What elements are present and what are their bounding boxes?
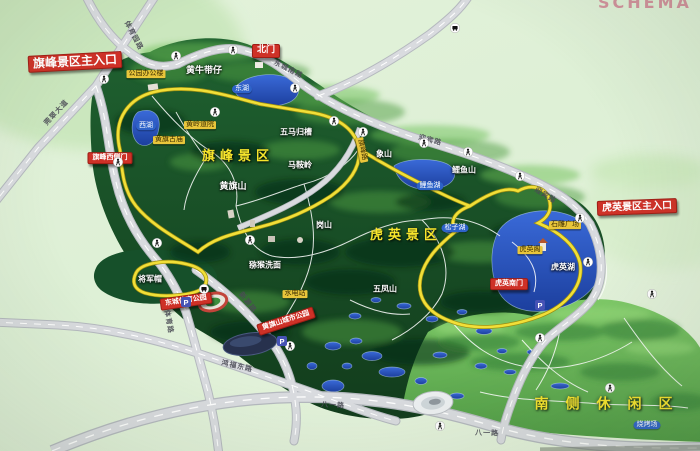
walker-icon	[535, 333, 545, 343]
tag-huying-pavilion: 虎英阁	[518, 246, 543, 254]
map-labels-layer: 旗峰景区主入口北门虎英景区主入口旗峰西侧门虎英南门东城体育公园黄旗山城市公园黄牛…	[0, 0, 700, 451]
place-jiangjunmao: 将军帽	[138, 276, 162, 285]
svg-text:P: P	[279, 337, 284, 346]
parking-icon: P	[277, 336, 287, 346]
area-title-qifeng: 旗峰景区	[202, 150, 274, 164]
place-liyushan: 鲤鱼山	[452, 167, 476, 176]
qifeng-main-entrance-label: 旗峰景区主入口	[28, 51, 123, 73]
lake-tag-east-lake: 东湖	[232, 85, 252, 93]
place-wumaguicao: 五马归槽	[280, 129, 312, 138]
road-bayi-2: 八一路	[475, 430, 499, 439]
lake-tag-west-lake: 西湖	[136, 122, 156, 130]
tag-huangqi-temple: 黄旗古庙	[153, 136, 185, 144]
area-title-south-leisure: 南侧休闲区	[535, 397, 690, 412]
road-tiyu: 体育路	[162, 310, 174, 335]
place-wufengshan: 五凤山	[373, 286, 397, 295]
walker-icon	[575, 213, 585, 223]
bus-icon	[450, 23, 460, 33]
walker-icon	[515, 171, 525, 181]
place-xiangshan: 象山	[376, 151, 392, 160]
huying-lake-name: 虎英湖	[551, 264, 575, 273]
walker-icon	[419, 138, 429, 148]
huying-south-gate-label: 虎英南门	[490, 278, 528, 290]
walker-icon	[605, 383, 615, 393]
tag-park-office: 公园办公楼	[127, 70, 166, 78]
walker-icon	[435, 421, 445, 431]
place-huangniudaizai: 黄牛带仔	[186, 67, 222, 77]
tag-hydro-station: 水电站	[283, 290, 308, 298]
english-title-partial: SCHEMA	[598, 0, 692, 12]
park-map-photo: 旗峰景区主入口北门虎英景区主入口旗峰西侧门虎英南门东城体育公园黄旗山城市公园黄牛…	[0, 0, 700, 451]
walker-icon	[113, 157, 123, 167]
bus-icon	[199, 284, 209, 294]
tag-huangling-temple: 黄岭道院	[184, 121, 216, 129]
huying-main-entrance-label: 虎英景区主入口	[597, 198, 677, 216]
place-gangshan: 岗山	[316, 222, 332, 231]
walker-icon	[228, 45, 238, 55]
road-guancui-avenue: 莞翠大道	[43, 99, 70, 128]
road-hongfudong: 鸿福东路	[221, 360, 254, 375]
lake-tag-liyu-lake: 鲤鱼湖	[417, 182, 444, 190]
walker-icon	[290, 83, 300, 93]
huangqishan-city-park-label: 黄旗山城市公园	[256, 306, 316, 335]
place-huangqishan: 黄旗山	[219, 183, 246, 193]
road-xinyuan: 新源路	[237, 291, 258, 315]
parking-icon: P	[181, 297, 191, 307]
walker-icon	[583, 257, 593, 267]
walker-icon	[245, 235, 255, 245]
lake-tag-bbq-area: 烧烤场	[634, 421, 661, 429]
parking-icon: P	[535, 300, 545, 310]
place-mihouximian: 猕猴洗面	[249, 262, 281, 271]
walker-icon	[171, 51, 181, 61]
walker-icon	[358, 127, 368, 137]
north-gate-label: 北门	[252, 44, 280, 58]
svg-text:P: P	[537, 301, 542, 310]
walker-icon	[99, 74, 109, 84]
road-qifeng: 旗峰路	[356, 137, 369, 163]
lake-tag-songzi-lake: 松子湖	[442, 224, 469, 232]
place-maanling: 马鞍岭	[288, 162, 312, 171]
road-dongchengnan: 东城南路	[272, 59, 304, 80]
walker-icon	[329, 116, 339, 126]
road-yingbin-2: 迎宾路	[533, 186, 557, 205]
road-tiyuyuan: 体育园路	[122, 20, 144, 52]
walker-icon	[463, 147, 473, 157]
area-title-huying: 虎英景区	[370, 229, 442, 243]
svg-text:P: P	[183, 298, 188, 307]
walker-icon	[152, 238, 162, 248]
road-bayi-1: 八一路	[321, 401, 345, 410]
qifeng-west-gate-label: 旗峰西侧门	[88, 152, 133, 164]
walker-icon	[647, 289, 657, 299]
walker-icon	[210, 107, 220, 117]
